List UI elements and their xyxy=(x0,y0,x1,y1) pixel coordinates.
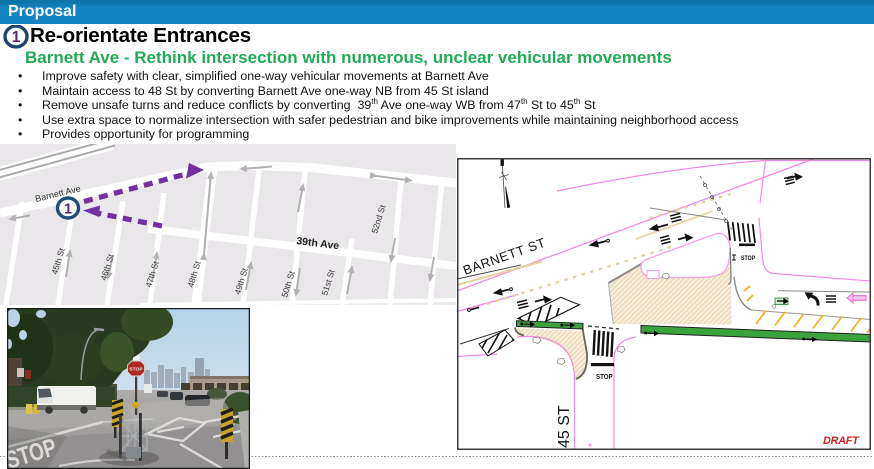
svg-text:STOP: STOP xyxy=(741,256,755,262)
svg-text:DRAFT: DRAFT xyxy=(823,435,860,447)
svg-text:45 ST: 45 ST xyxy=(556,405,573,448)
svg-text:STOP: STOP xyxy=(129,367,143,373)
svg-text:1: 1 xyxy=(12,29,21,46)
svg-text:1: 1 xyxy=(64,202,72,218)
svg-text:STOP: STOP xyxy=(596,374,613,382)
